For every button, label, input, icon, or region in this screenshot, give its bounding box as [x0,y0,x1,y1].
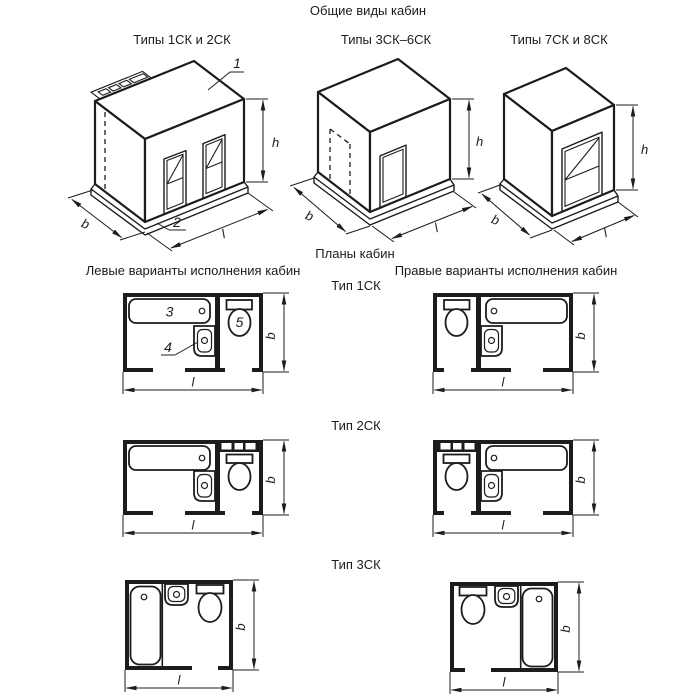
callout-washbasin: 4 [164,339,172,355]
dim-label-b: b [558,625,573,632]
plan-2ck-left: b l [121,438,296,541]
right-variant-header: Правые варианты исполнения кабин [395,264,618,278]
dim-depth: b [558,582,584,672]
dim-label-l: l [219,226,228,241]
dim-label-b: b [263,332,278,339]
plan-1ck-left: 3 4 5 b l [121,291,296,398]
plan-row-label-3: Тип 3СК [331,558,380,572]
dim-depth: b [233,580,259,670]
left-variant-header: Левые варианты исполнения кабин [86,264,301,278]
plan-row-label-2: Тип 2СК [331,419,380,433]
dim-label-b: b [304,207,316,224]
dim-label-b: b [263,476,278,483]
dim-length: l [123,372,263,394]
svg-text:2: 2 [172,214,181,230]
dim-label-l: l [178,673,182,688]
dim-label-b: b [573,476,588,483]
dim-label-h: h [641,142,648,157]
dim-length: l [125,670,233,692]
dim-length: l [433,515,573,537]
plan-3ck-right: b l [448,580,593,698]
callout-toilet: 5 [236,314,244,330]
iso-view-types-7-8: h b l [477,56,657,248]
dim-label-l: l [192,518,196,533]
view-caption-2: Типы 3СК–6СК [341,33,431,47]
dim-depth: b [573,293,599,372]
dim-depth: b [263,440,289,515]
callout-bath: 3 [166,304,174,320]
plan-row-label-1: Тип 1СК [331,279,380,293]
dim-height: h [616,105,648,190]
dim-depth: b [573,440,599,515]
plan-2ck-right: b l [431,438,606,541]
view-caption-3: Типы 7СК и 8СК [510,33,608,47]
dim-length: l [450,672,558,694]
drawing-sheet: Общие виды кабин Типы 1СК и 2СК Типы 3СК… [0,0,700,700]
plan-3ck-left: b l [123,578,268,696]
cabin-box [504,68,614,216]
view-caption-1: Типы 1СК и 2СК [133,33,231,47]
dim-height: h [246,99,279,182]
dim-label-b: b [573,332,588,339]
dim-depth: b [263,293,289,372]
iso-view-types-3-6: h b l [288,54,483,249]
dim-label-l: l [192,375,196,390]
sheet-title: Общие виды кабин [310,4,426,18]
dim-label-b: b [490,211,502,228]
dim-label-l: l [502,375,506,390]
dim-length: l [433,372,573,394]
dim-label-l: l [432,220,441,235]
dim-label-h: h [272,135,279,150]
dim-label-l: l [503,675,507,690]
svg-text:1: 1 [233,55,241,71]
plan-1ck-right: b l [431,291,606,398]
dim-length: l [123,515,263,537]
dim-label-b: b [233,623,248,630]
plans-title: Планы кабин [315,247,394,261]
iso-view-types-1-2: h b l 1 2 [60,52,295,257]
dim-label-l: l [502,518,506,533]
dim-label-b: b [80,215,92,232]
